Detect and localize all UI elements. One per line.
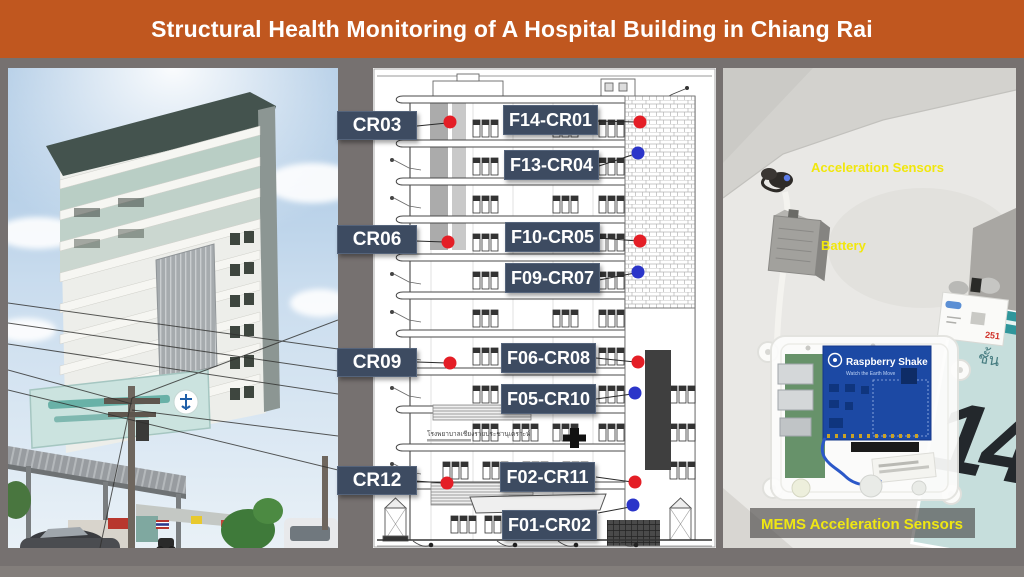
sensor-installation-photo: Acceleration Sensors Battery ชั้น 14 251 — [723, 68, 1016, 548]
shake-pcb: Raspberry Shake Watch the Earth Move — [823, 346, 931, 440]
title-bar: Structural Health Monitoring of A Hospit… — [0, 0, 1024, 58]
mems-label: MEMS Acceleration Sensors — [761, 516, 963, 533]
sensor-photo-panel: Acceleration Sensors Battery ชั้น 14 251 — [723, 68, 1016, 548]
sensor-label-f10-cr05: F10-CR05 — [505, 222, 600, 252]
shake-brand: Raspberry Shake — [846, 357, 928, 368]
sensor-label-f05-cr10: F05-CR10 — [501, 384, 596, 414]
slide-title: Structural Health Monitoring of A Hospit… — [151, 16, 873, 43]
sensor-led — [784, 175, 790, 181]
meter-number: 251 — [984, 330, 1000, 342]
brick-wall — [625, 96, 695, 308]
pin-header — [851, 442, 919, 452]
shake-tagline: Watch the Earth Move — [846, 371, 895, 377]
elevation-caption: โรงพยาบาลเชียงรายประชานุเคราะห์ — [427, 430, 530, 438]
sensor-label-f02-cr11: F02-CR11 — [500, 462, 595, 492]
sensor-label-f01-cr02: F01-CR02 — [502, 510, 597, 540]
sensor-label-cr12: CR12 — [337, 466, 417, 495]
pilaster-shading — [430, 98, 448, 250]
sensor-label-cr09: CR09 — [337, 348, 417, 377]
car-white — [284, 518, 338, 548]
sensor-label-f09-cr07: F09-CR07 — [505, 263, 600, 293]
acceleration-sensors-label: Acceleration Sensors — [811, 160, 944, 175]
usb-ports — [778, 364, 813, 436]
motorbike — [156, 538, 176, 548]
stair-core-block — [645, 350, 671, 470]
sensor-label-f13-cr04: F13-CR04 — [504, 150, 599, 180]
sensor-label-f06-cr08: F06-CR08 — [501, 343, 596, 373]
hospital-building-photo — [8, 68, 338, 548]
sensor-label-cr03: CR03 — [337, 111, 417, 140]
raspberry-shake-enclosure: Raspberry Shake Watch the Earth Move — [758, 336, 970, 504]
grille-panel — [156, 244, 217, 380]
hospital-photo-panel — [8, 68, 338, 548]
slide-bottom-strip — [0, 566, 1024, 577]
caption-subline — [427, 439, 471, 442]
battery-label: Battery — [821, 238, 867, 253]
mems-caption-bar: MEMS Acceleration Sensors — [750, 508, 975, 538]
sensor-label-f14-cr01: F14-CR01 — [503, 105, 598, 135]
sensor-label-cr06: CR06 — [337, 225, 417, 254]
gate-lattice — [607, 520, 660, 546]
